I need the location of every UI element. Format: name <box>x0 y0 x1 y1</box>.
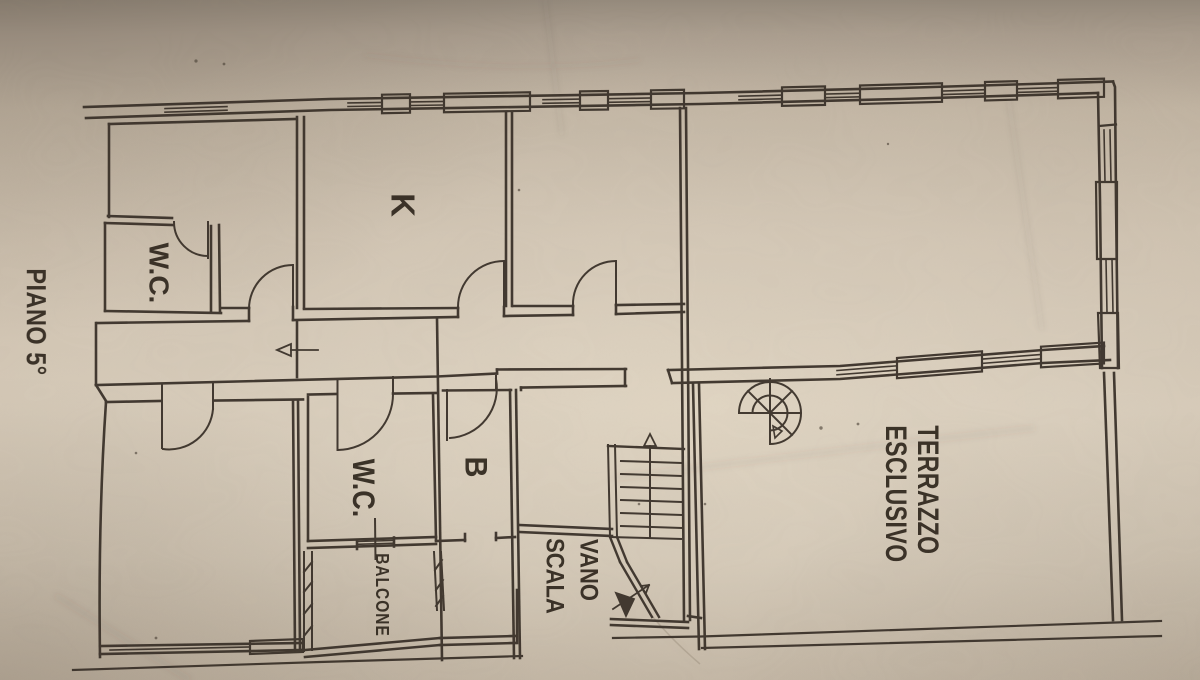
svg-text:VANO: VANO <box>574 539 602 601</box>
svg-text:TERRAZZO: TERRAZZO <box>911 425 945 554</box>
svg-text:W.C.: W.C. <box>144 243 175 304</box>
svg-text:BALCONE: BALCONE <box>372 553 393 637</box>
svg-text:PIANO 5°: PIANO 5° <box>20 268 50 375</box>
svg-text:B: B <box>458 457 494 478</box>
svg-text:W.C.: W.C. <box>345 459 379 517</box>
svg-text:K: K <box>384 193 421 217</box>
svg-text:ESCLUSIVO: ESCLUSIVO <box>879 425 913 562</box>
svg-text:SCALA: SCALA <box>540 538 568 614</box>
